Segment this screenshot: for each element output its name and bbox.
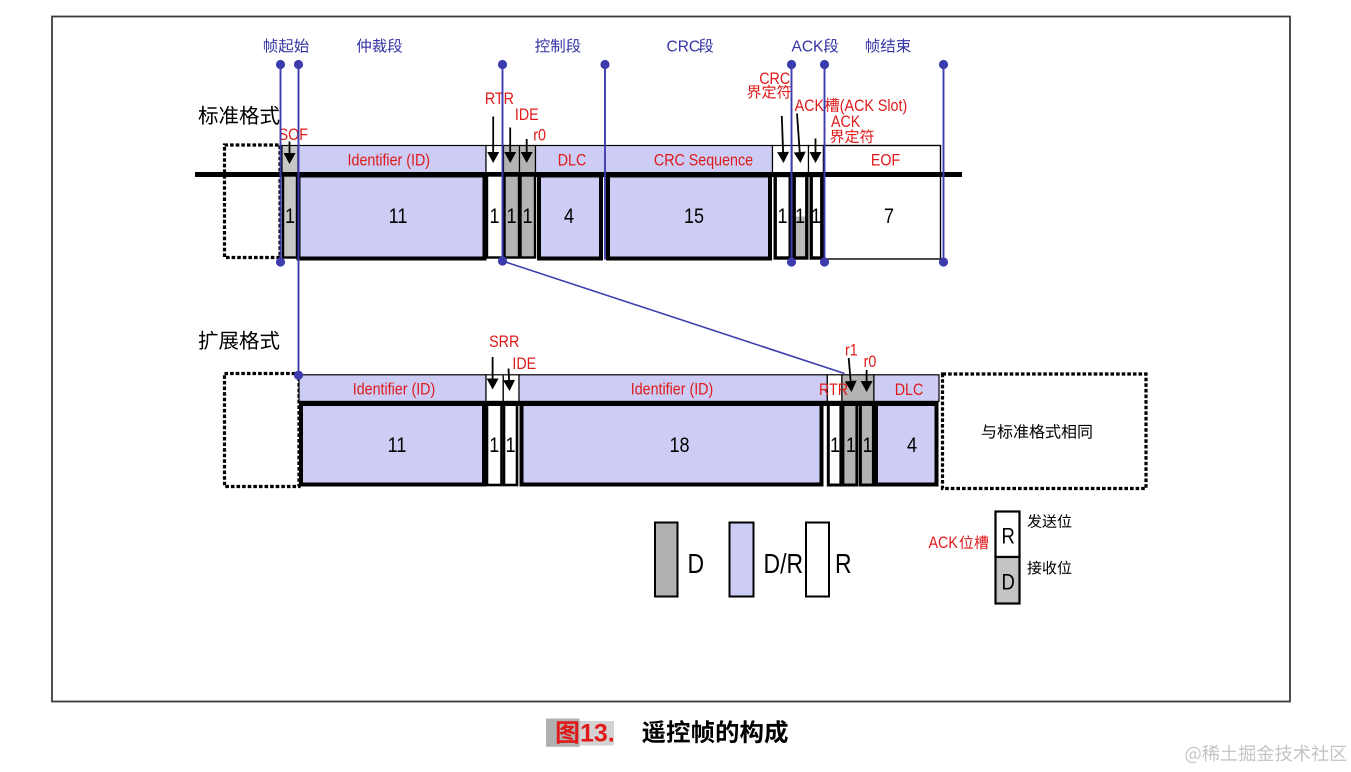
svg-text:ACK: ACK — [792, 39, 825, 56]
svg-text:D/R: D/R — [764, 549, 804, 580]
svg-text:DLC: DLC — [558, 151, 587, 169]
svg-text:1: 1 — [489, 434, 499, 458]
svg-text:1: 1 — [862, 434, 872, 458]
svg-text:IDE: IDE — [512, 355, 536, 373]
svg-text:RTR: RTR — [819, 381, 848, 399]
svg-text:D: D — [688, 549, 705, 580]
svg-text:R: R — [835, 549, 852, 580]
svg-text:ACK: ACK — [929, 534, 959, 552]
svg-text:DLC: DLC — [895, 381, 924, 399]
svg-text:RTR: RTR — [485, 90, 514, 108]
svg-text:4: 4 — [907, 434, 917, 458]
svg-text:1: 1 — [505, 434, 515, 458]
svg-text:D: D — [1002, 570, 1015, 595]
svg-text:1: 1 — [489, 205, 499, 229]
svg-text:11: 11 — [389, 205, 408, 229]
svg-text:4: 4 — [564, 205, 574, 229]
svg-text:1: 1 — [522, 205, 532, 229]
svg-text:SOF: SOF — [279, 126, 308, 144]
svg-text:1: 1 — [811, 205, 821, 229]
svg-text:1: 1 — [777, 205, 787, 229]
svg-text:r1: r1 — [845, 341, 858, 359]
svg-text:11: 11 — [388, 434, 407, 458]
svg-text:1: 1 — [846, 434, 856, 458]
svg-text:ACK: ACK — [831, 113, 861, 131]
svg-text:CRC: CRC — [667, 39, 701, 56]
svg-text:13.: 13. — [580, 720, 615, 748]
svg-text:1: 1 — [830, 434, 840, 458]
svg-text:EOF: EOF — [871, 151, 900, 169]
svg-text:15: 15 — [684, 205, 704, 229]
svg-text:1: 1 — [795, 205, 805, 229]
svg-text:r0: r0 — [864, 353, 877, 371]
svg-text:1: 1 — [506, 205, 516, 229]
svg-text:Identifier (ID): Identifier (ID) — [348, 151, 430, 169]
svg-text:Identifier (ID): Identifier (ID) — [631, 380, 713, 398]
svg-text:7: 7 — [884, 205, 894, 229]
svg-text:SRR: SRR — [489, 333, 519, 351]
svg-text:18: 18 — [669, 434, 689, 458]
svg-text:CRC Sequence: CRC Sequence — [654, 151, 753, 169]
svg-text:ACK: ACK — [795, 97, 825, 115]
svg-text:R: R — [1002, 524, 1015, 549]
svg-text:IDE: IDE — [515, 106, 539, 124]
svg-text:r0: r0 — [533, 126, 546, 144]
svg-text:1: 1 — [285, 205, 295, 229]
svg-text:Identifier (ID): Identifier (ID) — [353, 380, 435, 398]
